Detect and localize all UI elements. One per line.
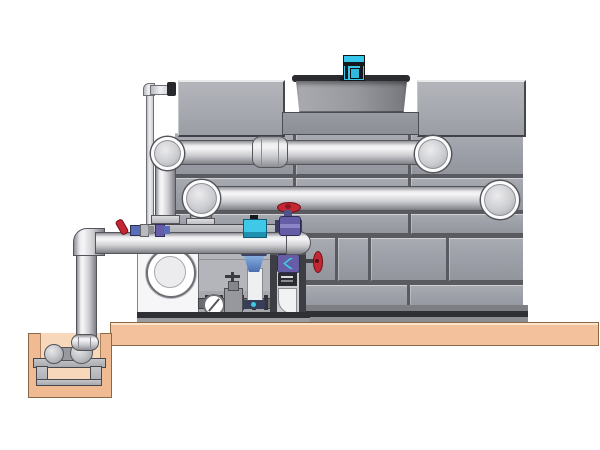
gate-valve-bonnet <box>228 281 239 291</box>
coupling-line <box>278 139 279 165</box>
technical-illustration <box>0 0 600 450</box>
panel-seam <box>446 238 449 281</box>
panel-seam <box>408 214 411 234</box>
coupling-line <box>78 337 79 348</box>
globe-valve-body <box>279 216 301 236</box>
valve-frame-post <box>270 250 277 318</box>
supply-pipe-ball-end <box>415 136 451 172</box>
handwheel-hub <box>315 259 319 263</box>
upper-supply-pipe <box>160 140 424 165</box>
sight-glass-flapper <box>208 298 220 312</box>
middle-return-pipe <box>199 186 493 211</box>
butterfly-valve <box>277 254 300 273</box>
injection-instrument-head <box>243 219 267 238</box>
frame-label-plate <box>278 273 297 286</box>
globe-valve-hub <box>285 204 291 209</box>
sump-pump-stand-rail <box>36 379 102 386</box>
tower-top-box-left <box>178 80 285 137</box>
supply-pipe-coupling <box>252 136 288 168</box>
riser-pipe <box>76 250 97 342</box>
gate-valve-handle <box>225 275 240 278</box>
injection-indicator-dot <box>251 302 256 307</box>
coupling-line <box>261 139 262 165</box>
tower-top-box-right <box>417 80 526 137</box>
supply-pipe-flange <box>151 215 180 224</box>
coupling-line <box>90 337 91 348</box>
return-pipe-ball-end <box>481 181 519 219</box>
riser-coupling <box>71 334 99 351</box>
instrument-band <box>244 232 266 237</box>
header-valve-fitting <box>164 226 170 234</box>
label-slit <box>281 280 293 282</box>
fan-motor <box>343 55 365 81</box>
pump-suction-eye <box>154 256 186 288</box>
return-pipe-ball-elbow <box>183 180 220 217</box>
supply-pipe-ball-elbow <box>151 137 184 170</box>
fan-motor-side-stripe <box>345 66 348 79</box>
fan-motor-side-stripe <box>360 66 363 79</box>
header-valve-fitting <box>148 226 154 234</box>
label-slit <box>281 276 293 278</box>
fan-motor-window <box>350 68 360 79</box>
concrete-platform <box>110 322 599 346</box>
panel-seam <box>368 238 371 281</box>
panel-seam <box>335 238 338 281</box>
globe-valve-band <box>280 224 300 228</box>
fan-deck-panel <box>282 112 419 135</box>
fan-cowl <box>296 81 407 112</box>
butterfly-disc-indicator <box>283 258 293 269</box>
skid-base-foot <box>137 318 310 322</box>
makeup-line-flange <box>167 82 176 96</box>
sump-pump-motor <box>44 344 64 364</box>
gate-valve-body <box>224 288 243 314</box>
